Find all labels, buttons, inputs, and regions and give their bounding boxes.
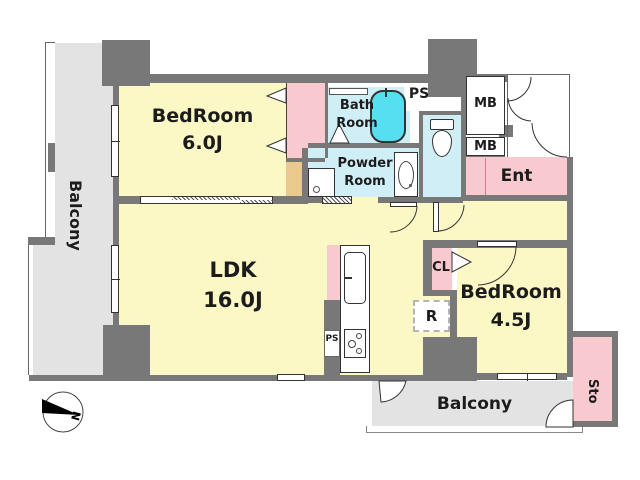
bathroom-label: BathRoom: [326, 96, 388, 134]
kitchen-ps-block-top: [324, 300, 340, 330]
storage-label: Sto: [580, 366, 604, 416]
kitchen-ps-block-bottom: [324, 357, 340, 375]
entry-cupboard-arc-1: [507, 77, 531, 101]
wall-chunk-bedroom2: [423, 337, 477, 377]
balcony-bottom-outer-strip: [366, 426, 583, 433]
powder-hatch-panel: [322, 196, 352, 204]
ldk-label: LDK16.0J: [168, 256, 298, 314]
pillar-bottom-left: [103, 325, 150, 381]
entry-outline-right: [569, 75, 570, 157]
bedroom2-window: [497, 373, 557, 380]
wall-bottom: [29, 375, 477, 381]
storage-wall-top: [567, 331, 618, 337]
hallway-floor: [423, 200, 567, 240]
wall-entrance-bottom: [461, 195, 567, 201]
balcony-bottom-label: Balcony: [397, 392, 552, 416]
sliding-door-panel-2: [240, 200, 273, 203]
mb-top-label: MB: [466, 95, 505, 113]
wall-top: [119, 74, 428, 83]
bedroom1-label: BedRoom6.0J: [135, 102, 270, 158]
pipe-space-kitchen-label: PS: [322, 333, 342, 345]
ldk-window-bottom: [277, 374, 305, 381]
bedroom1-window: [111, 105, 119, 177]
ldk-door-opening: [352, 197, 378, 203]
compass-needle: [42, 399, 79, 415]
kitchen-sink: [344, 252, 366, 304]
entrance-label: Ent: [466, 165, 567, 187]
cl-label: CL: [429, 259, 453, 276]
kitchen-stove: [344, 329, 366, 358]
ldk-door-leaf: [390, 202, 417, 207]
bedroom2-label: BedRoom4.5J: [452, 280, 570, 332]
pipe-space-top-label: PS: [402, 85, 436, 103]
compass-north-label: N: [68, 410, 83, 422]
powder-room-label: PowderRoom: [312, 153, 418, 193]
wall-powder-toilet: [419, 111, 423, 197]
wall-bath-powder: [308, 143, 419, 148]
storage-wall-right: [612, 337, 618, 427]
refrigerator-label: R: [413, 306, 450, 326]
bathroom-shelf: [329, 88, 368, 95]
compass-circle: [43, 392, 83, 432]
wall-bedroom1-ldk-left: [119, 196, 140, 204]
balcony-left-tab: [48, 143, 55, 172]
toilet-tank: [430, 119, 454, 130]
entry-outline-left: [507, 75, 508, 157]
balcony-left-outer-strip: [45, 42, 55, 240]
ldk-window-left: [111, 245, 119, 313]
storage-wall-bottom: [567, 421, 618, 427]
wall-right: [567, 157, 573, 377]
toilet-door-leaf: [433, 202, 439, 232]
entry-outline-top: [507, 74, 570, 75]
entry-cupboard-arc-2: [508, 98, 531, 121]
mb-bottom-label: MB: [466, 138, 505, 155]
bedroom2-door-leaf: [477, 241, 517, 247]
wall-toilet-top: [419, 111, 461, 115]
balcony-left-label: Balcony: [60, 148, 90, 282]
balcony-left-step-bar: [28, 237, 55, 245]
floor-plan: N Balcony BedRoom6.0J BathRoom PowderRoo…: [0, 0, 640, 480]
sliding-door-panel-1: [172, 197, 240, 200]
entry-door-arc: [532, 123, 567, 157]
